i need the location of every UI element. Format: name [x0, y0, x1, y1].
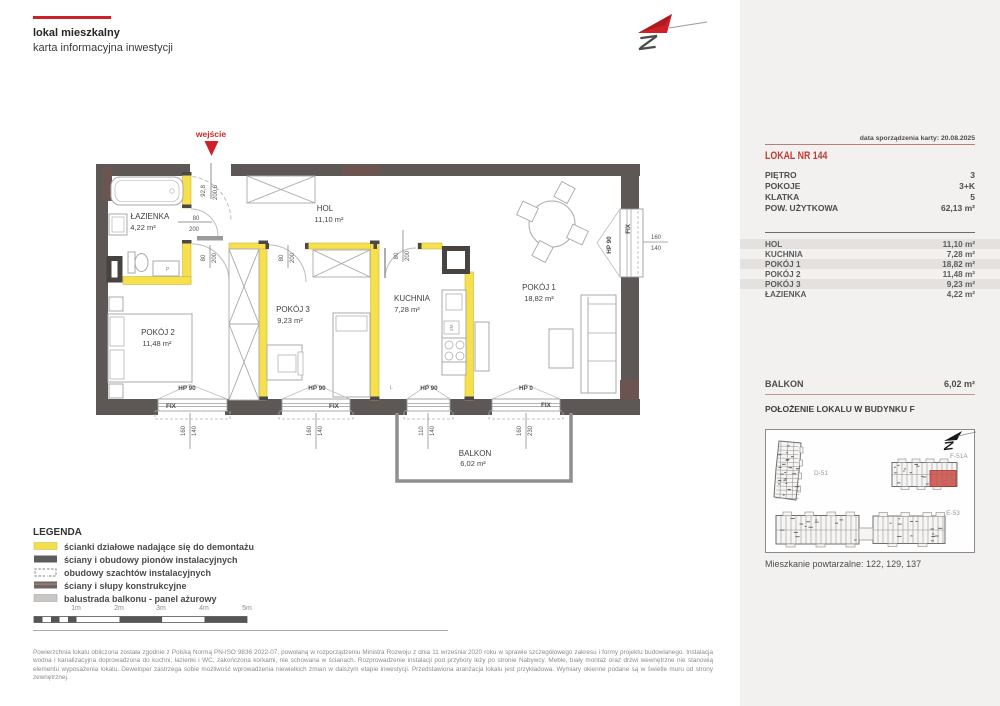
- svg-text:18,82 m²: 18,82 m²: [524, 294, 554, 303]
- svg-text:F-51A: F-51A: [950, 453, 968, 460]
- svg-text:3m: 3m: [156, 605, 166, 612]
- svg-text:200: 200: [405, 250, 411, 261]
- svg-text:92,8: 92,8: [201, 184, 207, 196]
- svg-text:HOL: HOL: [317, 204, 334, 213]
- svg-text:11,10 m²: 11,10 m²: [314, 215, 344, 224]
- svg-text:E-53: E-53: [946, 510, 960, 517]
- svg-text:7,28 m²: 7,28 m²: [394, 305, 420, 314]
- svg-text:160: 160: [181, 425, 187, 436]
- svg-text:POKÓJ 1: POKÓJ 1: [522, 283, 556, 292]
- svg-text:D-51: D-51: [814, 470, 828, 477]
- svg-text:FIX: FIX: [329, 403, 340, 410]
- svg-text:wejście: wejście: [195, 129, 227, 139]
- svg-text:230: 230: [528, 425, 534, 436]
- svg-text:6,02 m²: 6,02 m²: [460, 459, 486, 468]
- svg-text:HP 90: HP 90: [178, 385, 196, 392]
- svg-text:200,6: 200,6: [213, 184, 219, 200]
- svg-text:FIX: FIX: [166, 403, 177, 410]
- svg-text:HP 90: HP 90: [308, 385, 326, 392]
- svg-text:5m: 5m: [242, 605, 252, 612]
- svg-text:HP 90: HP 90: [420, 385, 438, 392]
- svg-text:L: L: [390, 385, 393, 391]
- svg-text:160: 160: [651, 235, 662, 241]
- svg-text:140: 140: [651, 246, 662, 252]
- svg-text:ZM: ZM: [449, 324, 454, 331]
- svg-text:160: 160: [307, 425, 313, 436]
- svg-text:80: 80: [394, 252, 400, 259]
- svg-text:HP 90: HP 90: [606, 236, 613, 254]
- svg-text:FIX: FIX: [625, 223, 632, 234]
- svg-text:140: 140: [430, 425, 436, 436]
- svg-text:POKÓJ 2: POKÓJ 2: [141, 328, 175, 337]
- svg-text:9,23 m²: 9,23 m²: [277, 316, 303, 325]
- svg-text:POKÓJ 3: POKÓJ 3: [276, 305, 310, 314]
- svg-text:80: 80: [279, 254, 285, 261]
- svg-text:4m: 4m: [199, 605, 209, 612]
- svg-text:2m: 2m: [114, 605, 124, 612]
- svg-text:ŁAZIENKA: ŁAZIENKA: [131, 212, 170, 221]
- svg-text:4,22 m²: 4,22 m²: [130, 223, 156, 232]
- svg-text:FIX: FIX: [541, 402, 552, 409]
- svg-text:200: 200: [212, 252, 218, 263]
- svg-text:160: 160: [517, 425, 523, 436]
- svg-text:KUCHNIA: KUCHNIA: [394, 294, 431, 303]
- svg-text:HP 0: HP 0: [519, 385, 533, 392]
- svg-text:110: 110: [419, 426, 425, 436]
- svg-text:80: 80: [201, 254, 207, 261]
- svg-text:80: 80: [193, 216, 200, 222]
- svg-text:11,48 m²: 11,48 m²: [142, 339, 172, 348]
- svg-text:140: 140: [318, 425, 324, 436]
- svg-text:200: 200: [290, 252, 296, 263]
- svg-text:BALKON: BALKON: [459, 449, 492, 458]
- svg-text:200: 200: [189, 227, 200, 233]
- svg-text:140: 140: [192, 425, 198, 436]
- svg-text:1m: 1m: [71, 605, 81, 612]
